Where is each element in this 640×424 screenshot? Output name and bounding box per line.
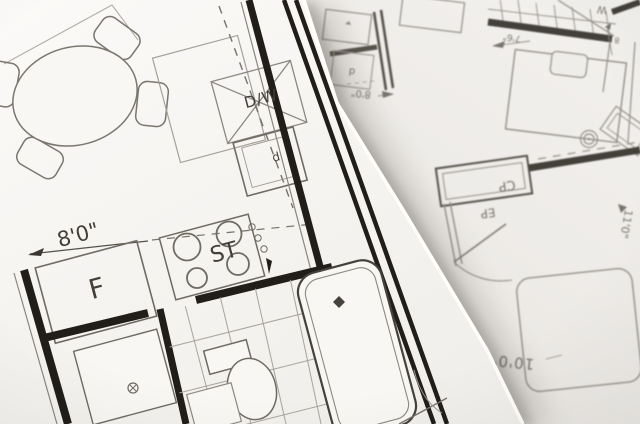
floorplan-photo: W 7'6" 8 8'0" d CP EP 10'0" 11'0" (0, 0, 640, 424)
scene-svg: W 7'6" 8 8'0" d CP EP 10'0" 11'0" (0, 0, 640, 424)
photo-vignette (0, 0, 640, 424)
